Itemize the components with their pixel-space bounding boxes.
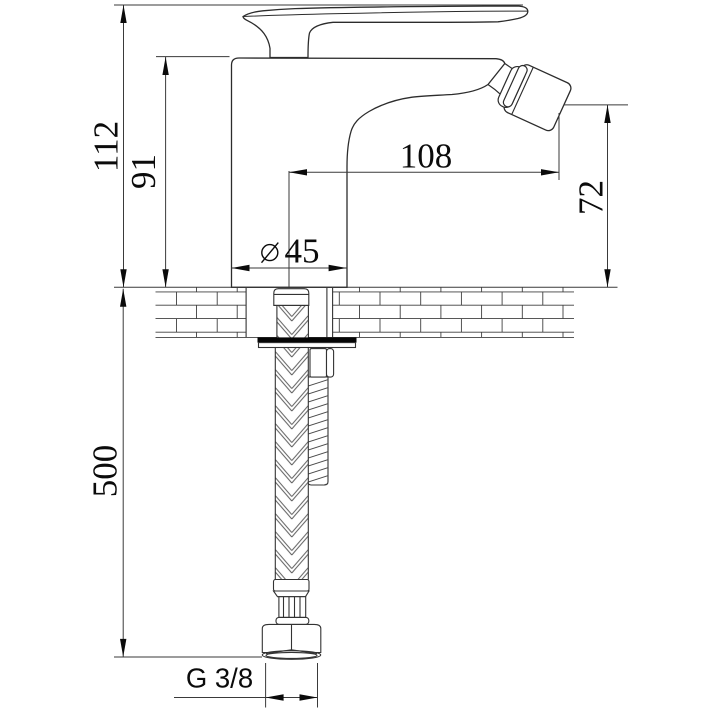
svg-text:500: 500 <box>86 445 125 498</box>
svg-text:72: 72 <box>572 180 611 215</box>
svg-text:G 3/8: G 3/8 <box>186 663 253 694</box>
svg-text:108: 108 <box>400 137 453 176</box>
svg-text:112: 112 <box>87 121 126 172</box>
svg-text:45: 45 <box>285 231 320 270</box>
svg-text:91: 91 <box>124 154 163 189</box>
